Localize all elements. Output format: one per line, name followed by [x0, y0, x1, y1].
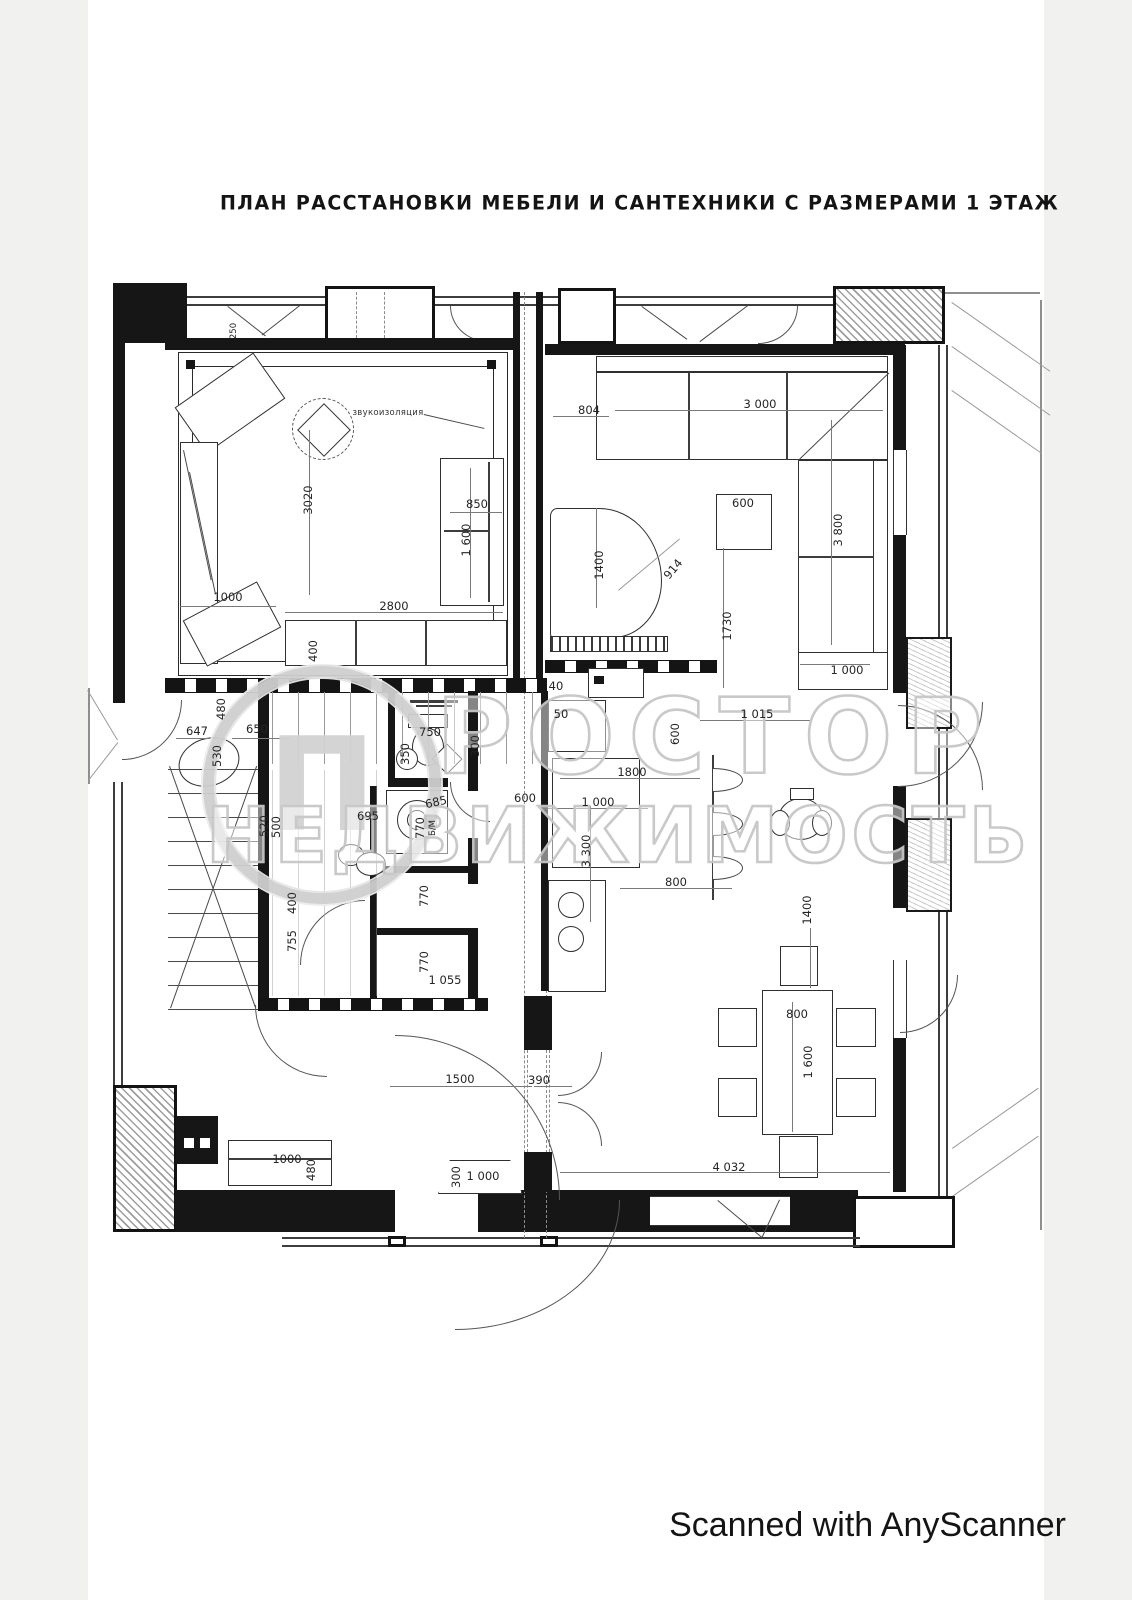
roof-hatch-line — [952, 1136, 1039, 1197]
scan-margin-right — [1044, 0, 1132, 1600]
wall-segment — [113, 782, 115, 1088]
wall-pier — [524, 996, 552, 1050]
dimension-line — [615, 410, 883, 411]
roof-hatch-line — [952, 1088, 1039, 1149]
dimension-line — [548, 808, 648, 809]
chimney-block — [325, 286, 435, 344]
wall-segment — [938, 345, 940, 1235]
sofa-back-line — [488, 462, 490, 602]
dimension-line — [700, 720, 810, 721]
wall-segment — [150, 296, 890, 298]
scanner-credit: Scanned with AnyScanner — [669, 1506, 1066, 1545]
lining-corner — [186, 360, 195, 369]
sofa-ottoman — [798, 652, 888, 690]
partition-wall — [468, 838, 478, 884]
dimension-label: 250 — [229, 323, 239, 339]
porch-post — [388, 1236, 406, 1247]
dimension-label: 600 — [668, 723, 682, 745]
burner — [558, 892, 584, 918]
dimension-label: 480 — [214, 698, 228, 720]
dimension-line — [590, 806, 591, 922]
partition-wall — [541, 691, 548, 991]
corner-wall-block — [833, 286, 945, 344]
corner-wall-block — [853, 1196, 955, 1248]
door-arc — [900, 975, 958, 1033]
dimension-line — [553, 416, 609, 417]
dimension-line — [560, 778, 700, 779]
scan-margin-left — [0, 0, 88, 1600]
dimension-line — [176, 738, 226, 739]
exterior-wall — [175, 1190, 395, 1232]
dimension-line — [620, 888, 732, 889]
masonry-pier — [906, 818, 952, 912]
sofa-cushion-line — [444, 530, 488, 532]
electrical-panel — [176, 1116, 218, 1164]
dimension-line — [800, 664, 870, 665]
bar-chair — [713, 812, 743, 836]
dining-chair — [836, 1008, 876, 1047]
interior-wall — [545, 344, 905, 355]
bay-line — [88, 688, 90, 784]
dining-chair — [836, 1078, 876, 1117]
door-arc — [450, 306, 488, 342]
dimension-label: 600 — [514, 791, 536, 805]
partition-wall — [388, 778, 448, 787]
dimension-label: 647 — [186, 724, 208, 738]
interior-wall — [165, 678, 547, 693]
exterior-wall — [113, 283, 125, 703]
bay-line — [88, 742, 118, 780]
page-title: ПЛАН РАССТАНОВКИ МЕБЕЛИ И САНТЕХНИКИ С Р… — [220, 191, 1059, 214]
door-swing-line — [262, 305, 300, 335]
bar-chair — [713, 768, 743, 792]
dining-chair — [718, 1078, 757, 1117]
dimension-line — [232, 738, 290, 739]
dimension-line — [723, 548, 724, 688]
partition-wall — [370, 928, 472, 935]
dimension-line — [831, 420, 832, 645]
piano-keyboard — [550, 636, 668, 652]
roof-hatch-line — [951, 302, 1050, 372]
dimension-label: 1 055 — [429, 973, 462, 987]
wall-segment — [946, 345, 948, 1235]
roof-hatch-line — [951, 346, 1050, 416]
coffee-table — [716, 494, 772, 550]
armchair-arm — [812, 810, 832, 836]
washing-machine-drum — [407, 810, 427, 830]
interior-wall — [165, 338, 513, 350]
dimension-line — [390, 1086, 532, 1087]
window — [893, 450, 907, 535]
dimension-label: 914 — [661, 556, 686, 582]
partition-wall — [513, 292, 520, 690]
dimension-line — [792, 1002, 793, 1132]
fridge — [548, 700, 606, 752]
entry-step — [438, 1160, 522, 1194]
dimension-label: 1 015 — [741, 707, 774, 721]
upper-flight-dashed-treads — [272, 770, 382, 996]
roof-overhang-line — [1040, 300, 1042, 1230]
corner-sofa-seat — [798, 460, 874, 656]
dining-chair — [780, 946, 818, 986]
wall-segment — [121, 782, 123, 1088]
bench-line — [228, 1158, 332, 1160]
corner-sofa-back — [596, 356, 888, 372]
tv-stand-detail — [594, 676, 604, 684]
dimension-line — [596, 508, 597, 608]
door-swing-line — [641, 306, 687, 340]
dimension-line — [534, 1086, 572, 1087]
dimension-label: 770 — [417, 885, 431, 907]
panel-switch — [200, 1138, 210, 1148]
chimney-flue-line — [356, 292, 357, 338]
stair-wall — [258, 691, 269, 1011]
door-swing-line — [227, 306, 265, 336]
low-cabinet — [285, 620, 507, 666]
sofa — [440, 458, 504, 606]
bar-chair — [713, 856, 743, 880]
dimension-label: 40 — [549, 679, 564, 693]
armchair-back — [790, 788, 814, 800]
cabinet-divider — [425, 620, 427, 666]
door-arc — [558, 1052, 602, 1096]
dimension-line — [470, 468, 471, 598]
dimension-line — [450, 512, 502, 513]
sofa-cushion-line — [688, 372, 690, 460]
opening-line — [549, 1050, 550, 1152]
lining-corner — [487, 360, 496, 369]
interior-wall — [893, 1038, 906, 1192]
dimension-label: 1400 — [800, 895, 814, 924]
door-swing-line — [699, 305, 748, 342]
scanned-floor-plan-page: ПЛАН РАССТАНОВКИ МЕБЕЛИ И САНТЕХНИКИ С Р… — [0, 0, 1132, 1600]
entrance-door-arc — [455, 1200, 620, 1330]
dimension-line — [560, 1172, 890, 1173]
interior-wall — [893, 786, 906, 908]
dining-chair — [718, 1008, 757, 1047]
door-arc — [558, 1102, 602, 1146]
door-arc — [450, 782, 490, 822]
dining-table — [762, 990, 833, 1135]
panel-switch — [184, 1138, 194, 1148]
kitchen-table — [552, 758, 640, 868]
burner — [558, 926, 584, 952]
chimney-flue-line — [384, 292, 385, 338]
section-line — [524, 292, 525, 1238]
dimension-label: 770 — [417, 951, 431, 973]
door-arc — [122, 700, 182, 760]
dimension-line — [285, 612, 503, 613]
sofa-cushion-line — [798, 556, 874, 558]
grand-piano — [550, 508, 662, 638]
sofa-cushion-line — [786, 372, 788, 460]
upper-flight-dashed-treads — [272, 692, 540, 764]
entry-bench — [228, 1140, 332, 1186]
dimension-line — [810, 928, 811, 988]
wall-pier — [558, 288, 616, 344]
cabinet-divider — [355, 620, 357, 666]
partition-wall — [536, 292, 543, 690]
roof-overhang-line — [945, 292, 1040, 294]
door-arc — [758, 306, 798, 344]
dimension-label: 800 — [665, 875, 687, 889]
armchair-arm — [770, 810, 790, 836]
partition-wall — [468, 928, 478, 998]
corner-wall-block — [113, 1085, 177, 1232]
door-arc — [255, 1005, 327, 1077]
dimension-line — [309, 430, 310, 595]
dimension-line — [180, 606, 276, 607]
